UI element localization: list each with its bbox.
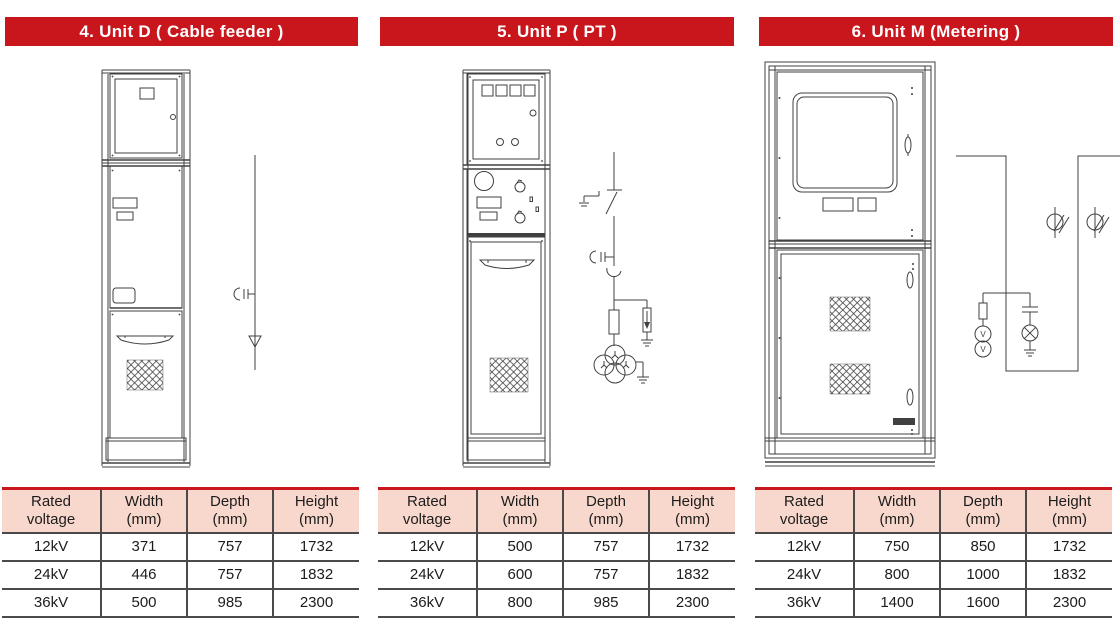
unit-p-handle [480, 260, 534, 269]
width-cell: 371 [101, 533, 187, 561]
height-cell: 2300 [649, 589, 735, 617]
current-transformer-icon [1047, 207, 1069, 238]
unit-m-title-banner: 6. Unit M (Metering ) [759, 17, 1113, 46]
unit-m-top-door [777, 72, 923, 240]
unit-d-cabinet-drawing [95, 66, 195, 481]
unit-m-vent-grille-upper [830, 297, 870, 331]
panel-unit-p: 5. Unit P ( PT ) [373, 0, 746, 621]
unit-d-title-banner: 4. Unit D ( Cable feeder ) [5, 17, 358, 46]
unit-d-schematic [218, 138, 298, 378]
header-width: Width(mm) [854, 489, 940, 533]
width-cell: 800 [477, 589, 563, 617]
table-row: 36kV 500 985 2300 [2, 589, 359, 617]
header-rated-voltage: Ratedvoltage [755, 489, 854, 533]
unit-d-top-door [110, 74, 182, 158]
width-cell: 446 [101, 561, 187, 589]
depth-cell: 985 [187, 589, 273, 617]
depth-cell: 850 [940, 533, 1026, 561]
unit-p-vent-grille [490, 358, 528, 392]
depth-cell: 1600 [940, 589, 1026, 617]
depth-cell: 757 [563, 533, 649, 561]
header-height: Height(mm) [273, 489, 359, 533]
unit-p-cabinet-drawing [456, 66, 556, 481]
table-row: 24kV 600 757 1832 [378, 561, 735, 589]
unit-d-spec-table: Ratedvoltage Width(mm) Depth(mm) Height(… [2, 487, 359, 618]
table-header-row: Ratedvoltage Width(mm) Depth(mm) Height(… [2, 489, 359, 533]
unit-p-instrument-panel [467, 169, 545, 237]
depth-cell: 985 [563, 589, 649, 617]
capacitive-tap-symbol [234, 288, 255, 300]
height-cell: 1832 [273, 561, 359, 589]
voltage-cell: 24kV [755, 561, 854, 589]
header-height: Height(mm) [649, 489, 735, 533]
width-cell: 1400 [854, 589, 940, 617]
height-cell: 2300 [273, 589, 359, 617]
table-header-row: Ratedvoltage Width(mm) Depth(mm) Height(… [755, 489, 1112, 533]
voltage-cell: 12kV [755, 533, 854, 561]
table-row: 12kV 371 757 1732 [2, 533, 359, 561]
voltage-cell: 12kV [378, 533, 477, 561]
depth-cell: 1000 [940, 561, 1026, 589]
voltage-cell: 24kV [2, 561, 101, 589]
height-cell: 1732 [273, 533, 359, 561]
catalog-page: 4. Unit D ( Cable feeder ) [0, 0, 1120, 621]
voltage-cell: 36kV [755, 589, 854, 617]
header-width: Width(mm) [101, 489, 187, 533]
table-row: 36kV 1400 1600 2300 [755, 589, 1112, 617]
lamp-branch [1022, 293, 1038, 356]
width-cell: 800 [854, 561, 940, 589]
header-depth: Depth(mm) [187, 489, 273, 533]
header-rated-voltage: Ratedvoltage [2, 489, 101, 533]
voltage-cell: 36kV [2, 589, 101, 617]
depth-cell: 757 [563, 561, 649, 589]
surge-arrester-symbol [614, 300, 653, 346]
height-cell: 1732 [649, 533, 735, 561]
unit-m-cabinet-drawing [760, 58, 940, 473]
height-cell: 2300 [1026, 589, 1112, 617]
voltmeter-branch: V V [975, 293, 991, 357]
height-cell: 1832 [1026, 561, 1112, 589]
current-transformer-icon [1087, 207, 1109, 238]
unit-m-spec-table: Ratedvoltage Width(mm) Depth(mm) Height(… [755, 487, 1112, 618]
unit-m-schematic: V V [956, 145, 1120, 390]
unit-p-schematic [572, 140, 672, 402]
header-width: Width(mm) [477, 489, 563, 533]
unit-m-bottom-door [777, 250, 923, 438]
unit-d-vent-grille [127, 360, 163, 390]
table-row: 36kV 800 985 2300 [378, 589, 735, 617]
header-depth: Depth(mm) [563, 489, 649, 533]
height-cell: 1732 [1026, 533, 1112, 561]
width-cell: 500 [101, 589, 187, 617]
voltage-cell: 24kV [378, 561, 477, 589]
voltmeter-label: V [980, 330, 986, 339]
header-depth: Depth(mm) [940, 489, 1026, 533]
cable-plug-symbol [607, 268, 621, 277]
depth-cell: 757 [187, 561, 273, 589]
table-row: 24kV 446 757 1832 [2, 561, 359, 589]
nameplate [893, 418, 915, 425]
capacitive-tap-symbol [590, 251, 614, 263]
height-cell: 1832 [649, 561, 735, 589]
unit-p-title-banner: 5. Unit P ( PT ) [380, 17, 734, 46]
panel-unit-d: 4. Unit D ( Cable feeder ) [0, 0, 373, 621]
table-row: 12kV 750 850 1732 [755, 533, 1112, 561]
width-cell: 750 [854, 533, 940, 561]
width-cell: 600 [477, 561, 563, 589]
voltage-transformer-symbol [594, 345, 649, 383]
header-height: Height(mm) [1026, 489, 1112, 533]
header-rated-voltage: Ratedvoltage [378, 489, 477, 533]
unit-m-vent-grille-lower [830, 364, 870, 394]
table-header-row: Ratedvoltage Width(mm) Depth(mm) Height(… [378, 489, 735, 533]
voltage-cell: 12kV [2, 533, 101, 561]
panel-unit-m: 6. Unit M (Metering ) [746, 0, 1120, 621]
unit-p-spec-table: Ratedvoltage Width(mm) Depth(mm) Height(… [378, 487, 735, 618]
voltmeter-label: V [980, 345, 986, 354]
table-row: 24kV 800 1000 1832 [755, 561, 1112, 589]
voltage-cell: 36kV [378, 589, 477, 617]
width-cell: 500 [477, 533, 563, 561]
unit-p-top-door [467, 74, 545, 165]
unit-d-handle [117, 336, 173, 344]
depth-cell: 757 [187, 533, 273, 561]
table-row: 12kV 500 757 1732 [378, 533, 735, 561]
earth-switch-symbol [579, 191, 599, 206]
fuse-symbol [609, 310, 619, 334]
